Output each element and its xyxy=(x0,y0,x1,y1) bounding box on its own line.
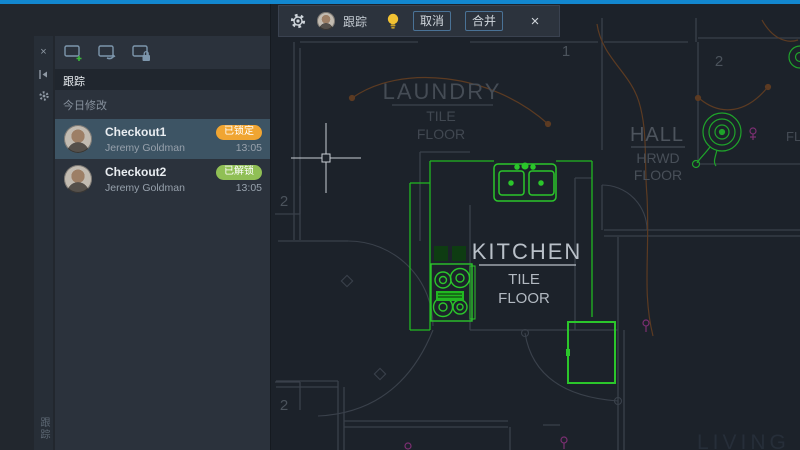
status-badge: 已锁定 xyxy=(216,125,262,140)
track-panel: 跟踪 今日修改 Checkout1 已锁定 Jeremy Goldman 13:… xyxy=(55,36,270,450)
grid-marker: 2 xyxy=(280,193,288,210)
hall-sub1: HRWD xyxy=(636,150,679,166)
grid-markers: 1 2 2 2 xyxy=(280,43,723,414)
panel-edge-strip: × 跟踪 xyxy=(34,36,53,450)
checkout-time: 13:05 xyxy=(236,142,262,154)
laundry-sub1: TILE xyxy=(426,108,456,124)
cooktop-pad xyxy=(452,246,466,261)
grid-marker: 2 xyxy=(715,53,723,70)
user-avatar[interactable] xyxy=(317,12,335,30)
grid-marker: 1 xyxy=(562,43,570,60)
refrigerator[interactable] xyxy=(566,322,615,383)
checkout-user: Jeremy Goldman xyxy=(105,182,185,194)
checkout-item[interactable]: Checkout2 已解锁 Jeremy Goldman 13:05 xyxy=(55,159,270,199)
laundry-sub2: FLOOR xyxy=(417,126,465,142)
cancel-button[interactable]: 取消 xyxy=(413,11,451,31)
gear-icon[interactable] xyxy=(289,12,307,30)
checkout-title: Checkout2 xyxy=(105,165,166,179)
avatar xyxy=(64,165,92,193)
new-checkout-icon[interactable] xyxy=(63,43,85,63)
checkout-item[interactable]: Checkout1 已锁定 Jeremy Goldman 13:05 xyxy=(55,119,270,159)
checkout-arrow-icon[interactable] xyxy=(97,43,119,63)
track-toolbar: 跟踪 取消 合并 × xyxy=(278,5,560,37)
kitchen-label: KITCHEN xyxy=(472,239,583,264)
status-badge: 已解锁 xyxy=(216,165,262,180)
wiring-arcs xyxy=(350,20,799,336)
living-label: LIVING R xyxy=(697,431,800,450)
bulb-icon[interactable] xyxy=(387,13,399,30)
merge-button[interactable]: 合并 xyxy=(465,11,503,31)
checkout-user: Jeremy Goldman xyxy=(105,142,185,154)
wall-lines xyxy=(275,18,800,450)
panel-header: 跟踪 xyxy=(55,69,270,90)
close-icon[interactable]: × xyxy=(525,13,545,30)
hall-sub2: FLOOR xyxy=(634,167,682,183)
ceiling-fan[interactable] xyxy=(693,113,742,168)
door-arcs xyxy=(318,185,647,416)
laundry-label: LAUNDRY xyxy=(383,79,502,104)
checkout-time: 13:05 xyxy=(236,182,262,194)
hall-label: HALL xyxy=(630,124,684,146)
panel-section-label: 今日修改 xyxy=(55,90,270,119)
stove[interactable] xyxy=(431,264,475,321)
track-vertical-tab[interactable]: 跟踪 xyxy=(34,410,53,448)
grid-marker: 2 xyxy=(280,397,288,414)
checkout-lock-icon[interactable] xyxy=(131,43,153,63)
light-fixture[interactable] xyxy=(789,46,800,68)
avatar xyxy=(64,125,92,153)
kitchen-sub2: FLOOR xyxy=(498,290,550,307)
panel-collapse-icon[interactable] xyxy=(34,66,53,82)
kitchen-sub1: TILE xyxy=(508,271,540,288)
app-window: LAUNDRY TILE FLOOR KITCHEN TILE FLOOR HA… xyxy=(0,0,800,450)
toolbar-title: 跟踪 xyxy=(343,13,367,30)
partial-room-label: FL xyxy=(786,129,800,144)
cooktop-pad xyxy=(434,246,448,261)
panel-close-icon[interactable]: × xyxy=(34,44,53,60)
outlet-symbols xyxy=(405,128,756,449)
panel-settings-icon[interactable] xyxy=(34,88,53,104)
crosshair-cursor xyxy=(291,123,361,193)
kitchen-sink[interactable] xyxy=(494,163,556,201)
panel-toolbar xyxy=(55,36,270,69)
checkout-title: Checkout1 xyxy=(105,125,166,139)
